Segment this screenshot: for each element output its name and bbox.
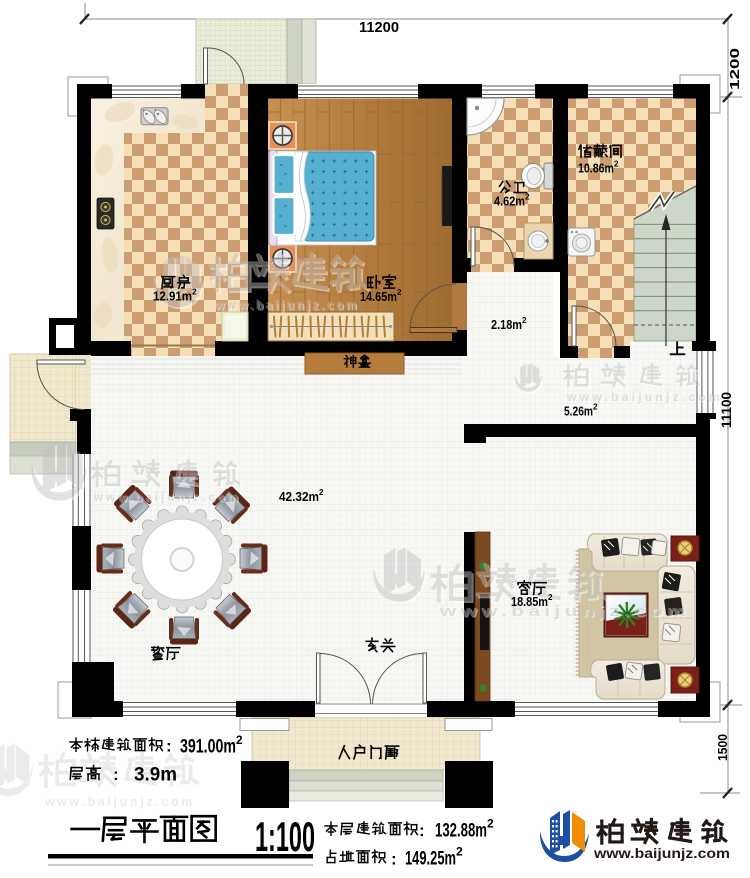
svg-text:www.baijunjz.com: www.baijunjz.com [44,794,195,809]
svg-text::: : [166,737,172,756]
svg-text:149.25m: 149.25m [405,848,456,870]
svg-text:www.baijunjz.com: www.baijunjz.com [593,846,730,861]
svg-text:2: 2 [525,193,530,202]
svg-text::: : [391,850,397,869]
svg-text:2: 2 [522,316,527,325]
svg-text:3.9m: 3.9m [134,765,177,786]
svg-text:1200: 1200 [727,48,742,90]
svg-text:www.baijunjz.com: www.baijunjz.com [566,392,723,404]
svg-text:42.32m: 42.32m [279,489,319,504]
svg-text:391.00m: 391.00m [180,737,236,758]
svg-text:14.65m: 14.65m [360,289,397,304]
svg-text:2: 2 [456,845,463,859]
svg-text:12.91m: 12.91m [153,289,192,304]
svg-text:11200: 11200 [359,20,399,36]
svg-text:1500: 1500 [715,734,730,761]
svg-text:2: 2 [593,403,598,412]
svg-text:5.26m: 5.26m [564,404,593,419]
svg-text:2: 2 [192,288,197,297]
svg-text:2: 2 [397,288,402,297]
svg-text::: : [113,765,119,784]
svg-text:4.62m: 4.62m [494,194,525,209]
svg-text:2: 2 [487,817,494,831]
svg-text:www.baijunjz.com: www.baijunjz.com [214,297,359,312]
svg-text:18.85m: 18.85m [511,594,548,609]
svg-text:2: 2 [236,733,243,747]
svg-text:www.baijunjz.com: www.baijunjz.com [93,492,241,504]
svg-text:www.baijunjz.com: www.baijunjz.com [439,604,690,620]
svg-text:2: 2 [319,488,324,497]
svg-text::: : [419,821,425,840]
svg-text:10.86m: 10.86m [578,161,614,176]
svg-text:132.88m: 132.88m [435,820,487,842]
svg-text:2: 2 [548,593,553,602]
svg-text:2.18m: 2.18m [491,317,522,332]
svg-text:2: 2 [614,160,619,169]
svg-text:1:100: 1:100 [255,813,315,860]
